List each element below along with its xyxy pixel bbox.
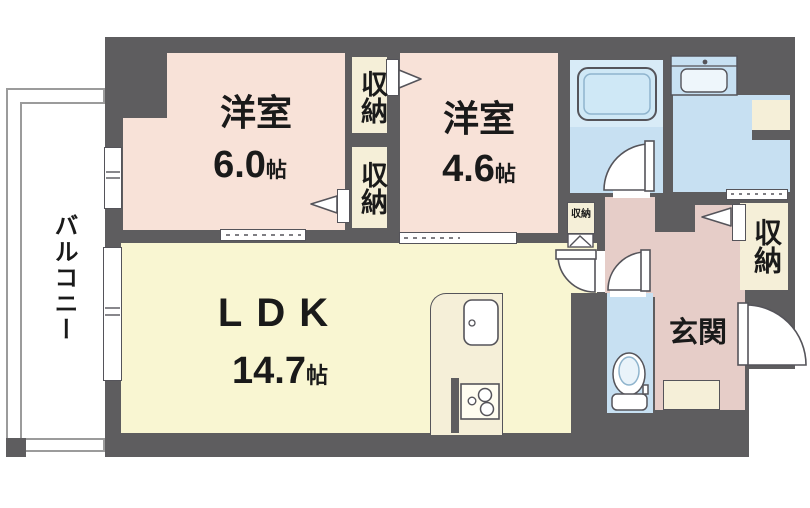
ldk-name: LDK [150, 292, 410, 334]
kitchen-sink-icon [464, 300, 498, 345]
bathroom-door-arc [604, 144, 650, 190]
ldk-size-unit: 帖 [306, 363, 328, 388]
bedroom2-size: 4.6帖 [395, 150, 563, 190]
bedroom2-size-unit: 帖 [495, 163, 516, 186]
toilet-door-leaf [641, 250, 650, 291]
wash-basin-icon [671, 56, 737, 95]
fixtures-overlay [0, 0, 810, 508]
bedroom2-name: 洋室 [400, 100, 558, 138]
closet-top-label: 収納 [354, 66, 386, 128]
floorplan: バルコニー [0, 0, 810, 508]
closet-small-label: 収納 [567, 210, 595, 221]
ldk-size-value: 14.7 [232, 350, 306, 392]
bedroom1-size-value: 6.0 [213, 144, 266, 186]
bedroom2-size-value: 4.6 [442, 148, 495, 190]
closet-entrance-swing-triangle [702, 208, 731, 226]
bathtub-icon [578, 68, 656, 120]
closet-bottom-label: 収納 [354, 156, 386, 220]
bedroom1-size-unit: 帖 [266, 159, 287, 182]
bedroom1-name: 洋室 [167, 94, 345, 132]
closet-entrance-label: 収納 [747, 213, 781, 279]
entrance-door-arc [746, 305, 806, 365]
genkan-label: 玄関 [650, 318, 746, 348]
bathroom-door-leaf [645, 141, 654, 191]
bedroom1-size: 6.0帖 [150, 146, 350, 186]
closet-top-swing-triangle [399, 70, 421, 88]
stove-icon [461, 384, 499, 419]
ldk-size: 14.7帖 [150, 352, 410, 392]
toilet-icon [612, 353, 648, 410]
closet-bottom-swing-triangle [311, 196, 337, 213]
ldk-door-arc [558, 255, 595, 292]
ldk-door-leaf [556, 250, 596, 259]
